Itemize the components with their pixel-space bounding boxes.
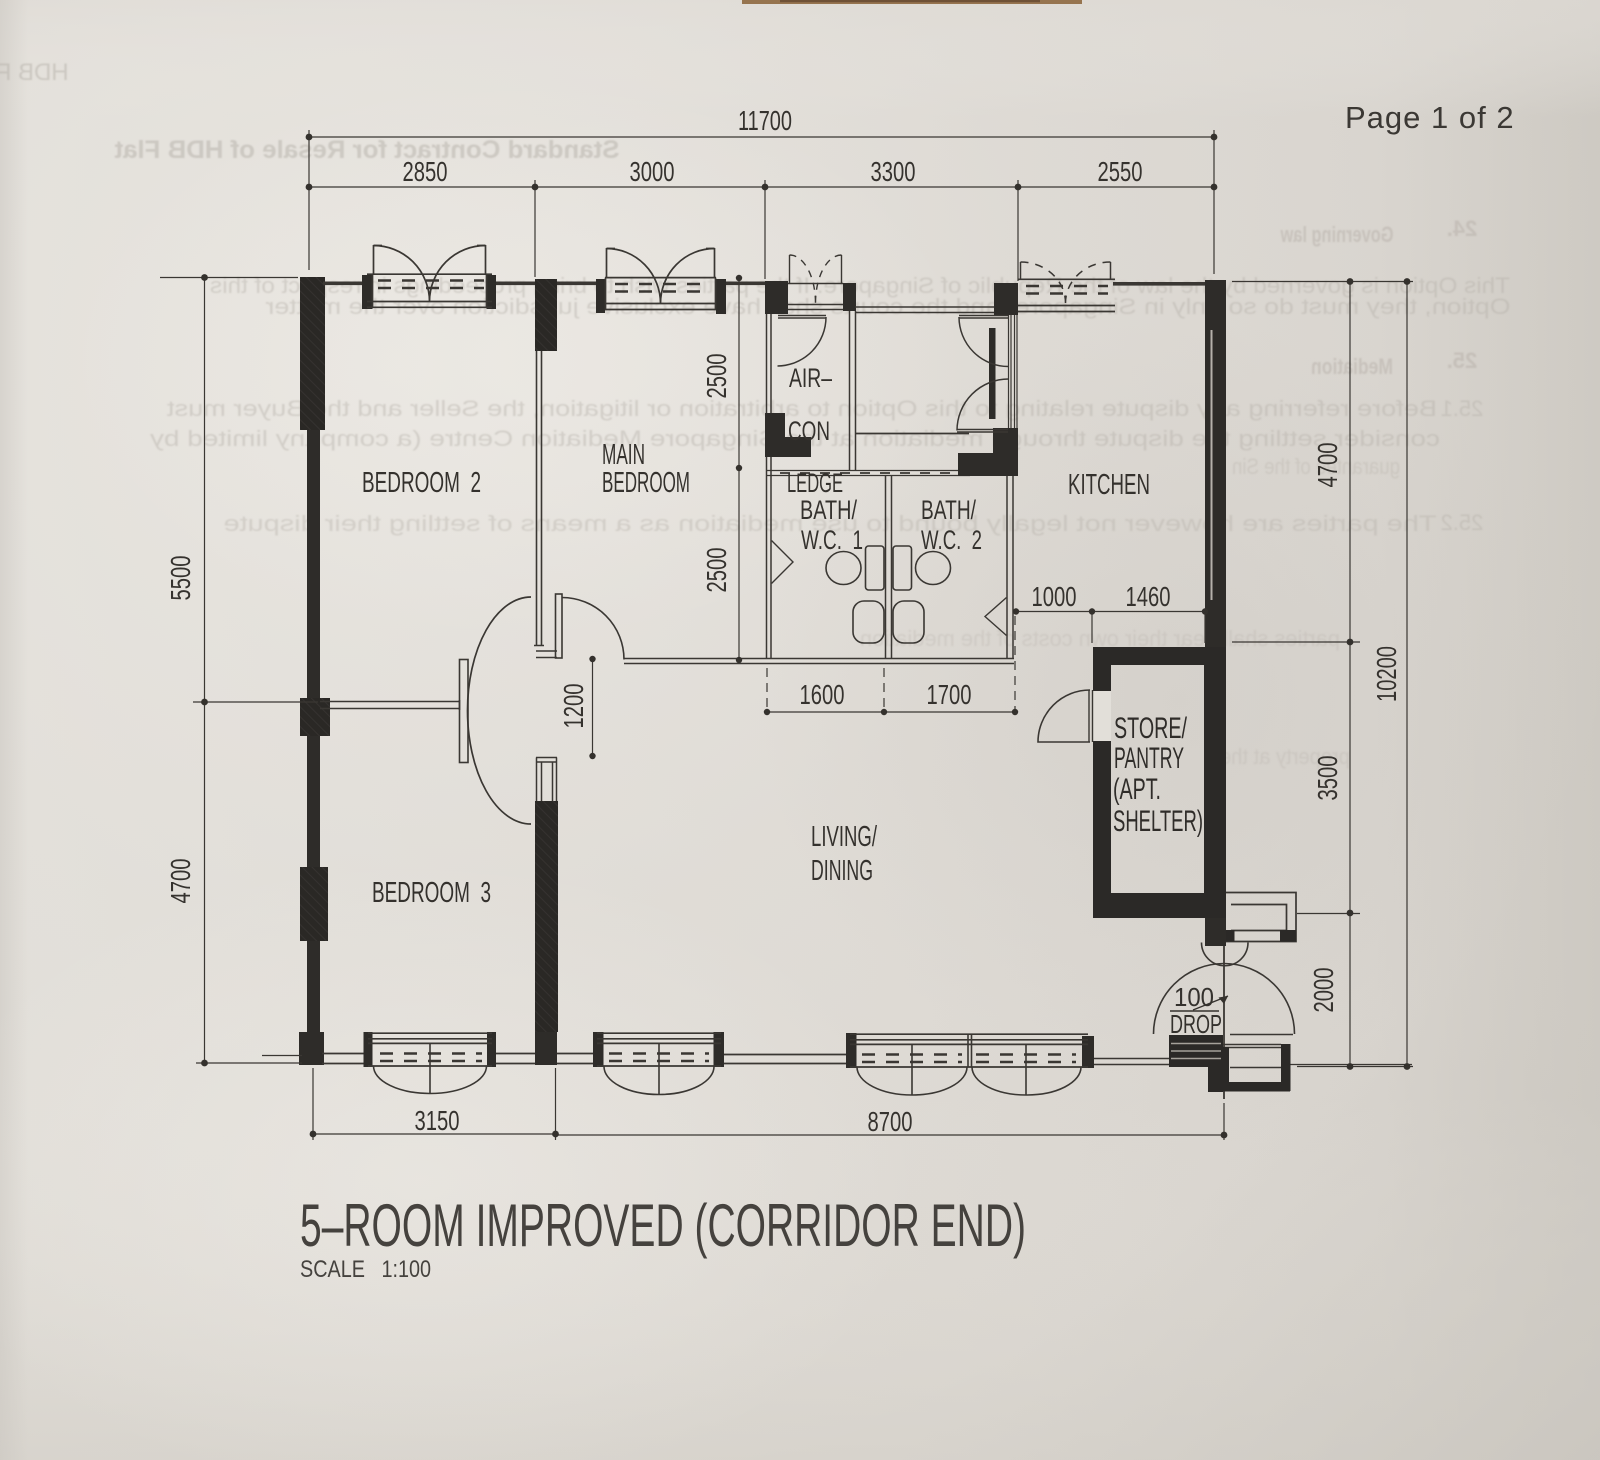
- svg-text:2850: 2850: [403, 156, 448, 187]
- svg-text:24.: 24.: [1447, 216, 1478, 241]
- svg-text:LEDGE: LEDGE: [787, 468, 843, 498]
- svg-text:LIVING/: LIVING/: [811, 821, 878, 853]
- svg-text:DINING: DINING: [811, 855, 873, 887]
- svg-text:CON: CON: [788, 416, 830, 446]
- svg-text:BATH/: BATH/: [800, 495, 857, 525]
- svg-text:1460: 1460: [1126, 581, 1171, 612]
- svg-text:SHELTER): SHELTER): [1113, 805, 1203, 838]
- svg-text:W.C. 2: W.C. 2: [921, 525, 982, 555]
- svg-text:25.2: 25.2: [1441, 510, 1484, 535]
- svg-text:2000: 2000: [1308, 968, 1339, 1013]
- svg-text:4700: 4700: [165, 859, 196, 904]
- svg-text:KITCHEN: KITCHEN: [1068, 469, 1150, 501]
- svg-text:25.1: 25.1: [1441, 396, 1484, 421]
- svg-text:2550: 2550: [1098, 156, 1143, 187]
- svg-text:BEDROOM: BEDROOM: [602, 467, 690, 499]
- svg-text:10200: 10200: [1371, 646, 1402, 702]
- svg-text:(APT.: (APT.: [1113, 773, 1161, 806]
- svg-text:BEDROOM 2: BEDROOM 2: [362, 467, 481, 499]
- svg-text:3150: 3150: [415, 1105, 460, 1136]
- svg-text:5500: 5500: [165, 556, 196, 601]
- svg-text:Page 1 of 2: Page 1 of 2: [1345, 100, 1515, 135]
- svg-text:3500: 3500: [1312, 756, 1343, 801]
- svg-text:BEDROOM 3: BEDROOM 3: [372, 877, 491, 909]
- svg-text:100: 100: [1174, 982, 1214, 1012]
- svg-text:BATH/: BATH/: [921, 495, 976, 525]
- svg-text:2500: 2500: [701, 354, 732, 399]
- svg-text:11700: 11700: [738, 105, 792, 136]
- svg-text:3300: 3300: [871, 156, 916, 187]
- svg-text:Mediation: Mediation: [1311, 354, 1393, 379]
- svg-text:8700: 8700: [868, 1106, 913, 1137]
- svg-text:Governing law: Governing law: [1280, 222, 1394, 247]
- svg-text:HDB Flat: HDB Flat: [0, 59, 69, 86]
- svg-text:DROP: DROP: [1170, 1009, 1222, 1039]
- svg-text:4700: 4700: [1312, 443, 1343, 488]
- svg-text:Standard Contract for Resale o: Standard Contract for Resale of HDB Flat: [114, 136, 620, 164]
- svg-text:3000: 3000: [630, 156, 675, 187]
- svg-text:1200: 1200: [558, 684, 589, 729]
- svg-text:5–ROOM IMPROVED (CORRIDOR END): 5–ROOM IMPROVED (CORRIDOR END): [300, 1192, 1026, 1259]
- svg-text:PANTRY: PANTRY: [1114, 742, 1184, 775]
- svg-text:2500: 2500: [701, 548, 732, 593]
- svg-text:W.C. 1: W.C. 1: [801, 525, 863, 555]
- svg-text:STORE/: STORE/: [1114, 712, 1187, 745]
- svg-text:1700: 1700: [927, 679, 972, 710]
- svg-text:1000: 1000: [1032, 581, 1077, 612]
- svg-text:25.: 25.: [1447, 348, 1478, 373]
- svg-text:1600: 1600: [800, 679, 845, 710]
- svg-text:AIR–: AIR–: [789, 363, 832, 393]
- svg-text:SCALE 1:100: SCALE 1:100: [300, 1256, 431, 1283]
